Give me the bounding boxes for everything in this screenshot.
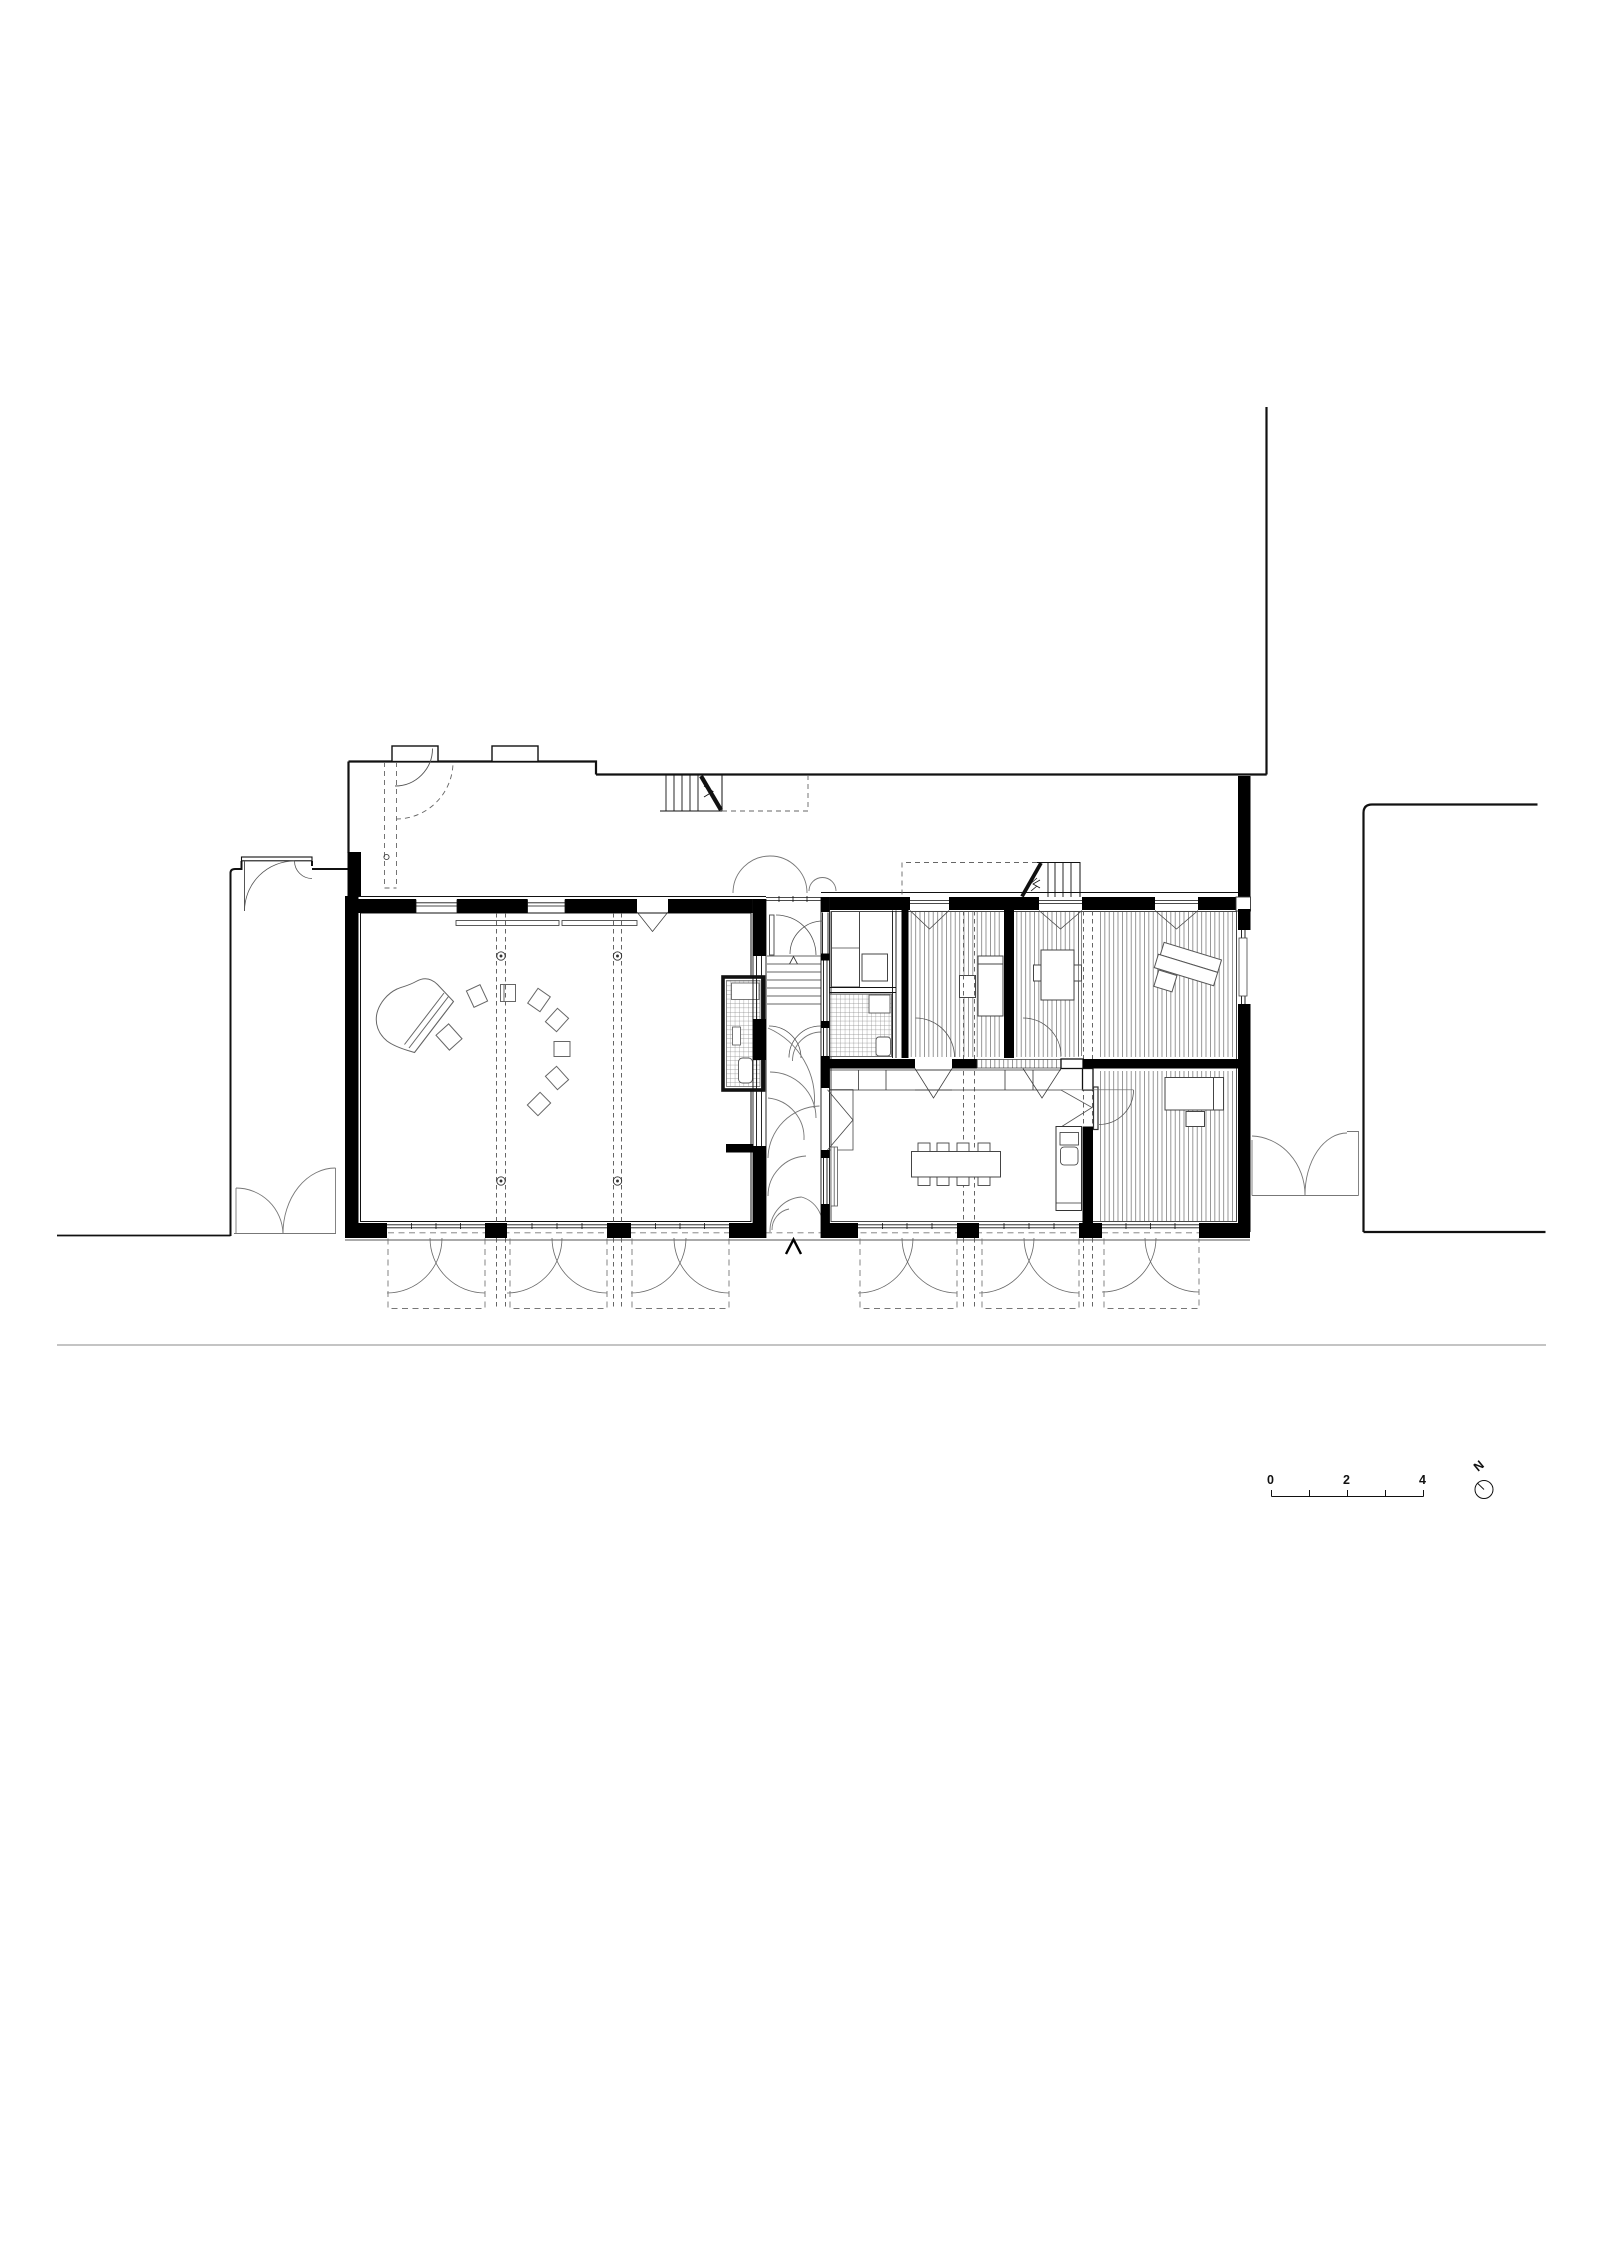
svg-text:0: 0 [1267,1473,1274,1487]
svg-text:2: 2 [1343,1473,1350,1487]
svg-text:4: 4 [1419,1473,1426,1487]
